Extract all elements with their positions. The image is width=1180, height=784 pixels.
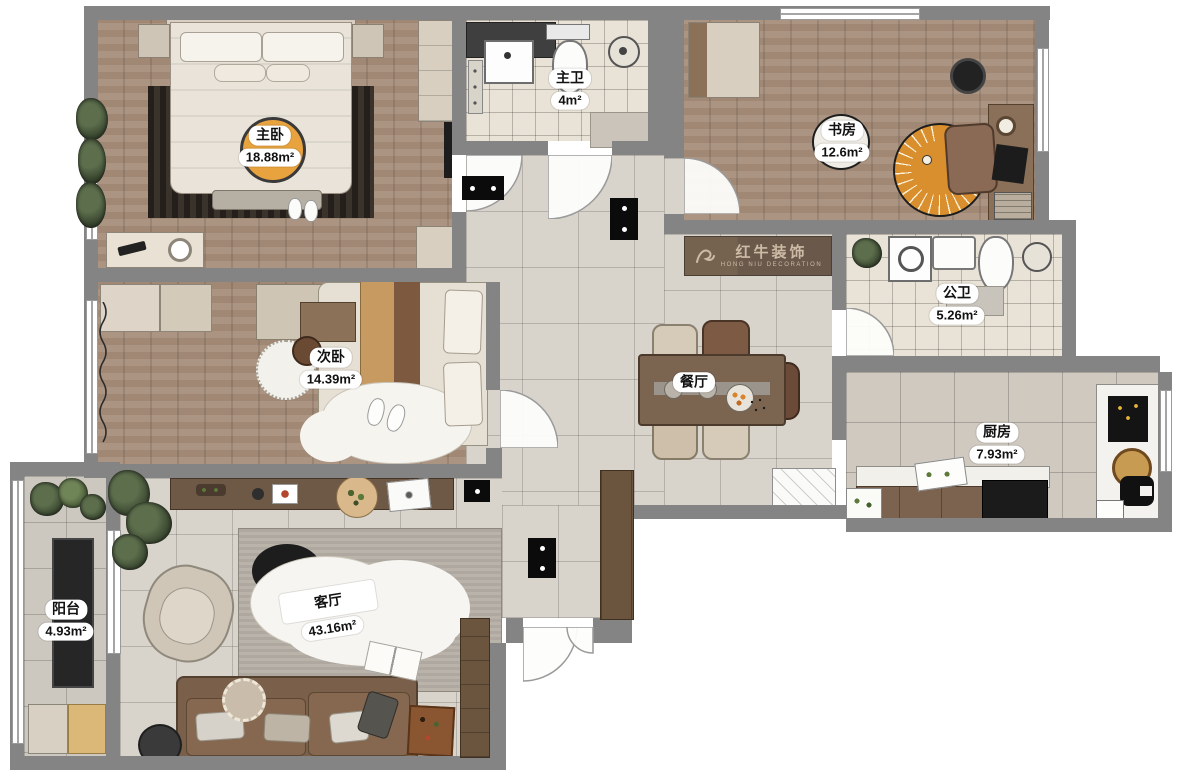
curtain <box>96 302 110 458</box>
wall <box>664 220 1076 234</box>
master-bathroom-door <box>548 155 612 219</box>
master-tv <box>444 122 452 178</box>
wall <box>84 268 466 282</box>
brand-name: 红牛装饰 <box>735 245 807 260</box>
wall <box>846 356 1160 372</box>
lion-eye <box>922 155 932 165</box>
wall <box>486 282 500 390</box>
wall <box>832 356 846 440</box>
room-label-public-bathroom: 公卫 5.26m² <box>929 284 984 325</box>
ceiling-marker <box>610 198 638 240</box>
kitchen-range <box>982 480 1048 520</box>
bathroom-plant <box>852 238 882 268</box>
red-plate <box>272 484 298 504</box>
wall <box>648 20 684 141</box>
entry-cabinet-south <box>460 618 490 758</box>
sink-faucet <box>504 52 511 59</box>
hall-cabinet <box>772 468 836 508</box>
wall <box>664 141 684 158</box>
room-label-master-bathroom: 主卫 4m² <box>549 69 591 110</box>
balcony-plant <box>80 494 106 520</box>
room-name: 厨房 <box>976 423 1018 443</box>
wardrobe <box>160 284 212 332</box>
entry-cabinet-east <box>600 470 634 620</box>
desk-chair <box>944 122 999 195</box>
wall <box>618 505 846 519</box>
room-label-study: 书房 12.6m² <box>814 121 869 162</box>
dining-chair <box>652 420 698 460</box>
wall <box>486 448 502 478</box>
window-study-right <box>1037 48 1049 152</box>
ceiling-marker <box>528 538 556 578</box>
vanity-mirror <box>168 238 192 262</box>
room-area: 14.39m² <box>300 370 362 388</box>
room-label-master-bedroom: 主卧 18.88m² <box>239 126 301 167</box>
shower-head-2 <box>1022 242 1052 272</box>
floor-plan: 红牛装饰 HONG NIU DECORATION 主卧 18.88m² 主卫 4… <box>0 0 1180 784</box>
window-plant <box>76 182 106 228</box>
decor-branch <box>748 396 770 414</box>
slipper <box>304 200 318 222</box>
bathroom-sink <box>484 40 534 84</box>
window-kitchen-right <box>1160 390 1172 472</box>
slipper <box>288 198 302 220</box>
wall <box>452 20 466 155</box>
wall <box>466 141 548 155</box>
wall <box>10 462 120 476</box>
master-pillow-right <box>262 32 344 62</box>
wall <box>452 212 466 268</box>
painting <box>387 478 432 512</box>
room-name: 次卧 <box>310 348 352 368</box>
window-plant <box>76 98 108 140</box>
room-name: 主卫 <box>549 69 591 89</box>
desk-books <box>994 192 1032 220</box>
room-name: 书房 <box>821 121 863 141</box>
wall-marker <box>464 480 490 502</box>
room-area: 12.6m² <box>814 143 869 161</box>
master-pillow-left <box>180 32 262 62</box>
room-name: 公卫 <box>936 284 978 304</box>
wall <box>506 618 523 643</box>
room-label-kitchen: 厨房 7.93m² <box>969 423 1024 464</box>
shower-head-center <box>619 47 627 55</box>
toilet-tank-2 <box>954 270 964 280</box>
room-label-second-bedroom: 次卧 14.39m² <box>300 348 362 389</box>
console-plant <box>336 476 378 518</box>
kettle-slot <box>1140 486 1152 496</box>
side-table <box>407 705 456 757</box>
woven-basket-decor <box>222 678 266 722</box>
master-pillow-small-2 <box>266 64 310 82</box>
wall <box>84 464 492 478</box>
room-name: 阳台 <box>45 600 87 620</box>
toiletry-shelf <box>468 60 483 114</box>
room-area: 18.88m² <box>239 148 301 166</box>
fluffy-rug-lobe <box>300 410 362 462</box>
laptop <box>992 144 1029 184</box>
window-study-top <box>780 8 920 20</box>
room-area: 4m² <box>551 91 588 109</box>
wall <box>488 643 506 758</box>
room-name: 主卧 <box>249 126 291 146</box>
room-label-dining-room: 餐厅 <box>673 372 715 392</box>
balcony-cabinet-wood <box>68 704 106 754</box>
leaf-dish <box>196 484 226 496</box>
sofa-pillow <box>263 713 310 743</box>
brand-subtitle: HONG NIU DECORATION <box>721 262 823 268</box>
bull-logo-icon <box>694 245 716 267</box>
wall <box>832 234 846 310</box>
study-door <box>684 158 740 214</box>
bathroom-sink-2 <box>932 236 976 270</box>
wall <box>612 141 664 155</box>
entrance-double-door <box>523 627 595 685</box>
public-bathroom-door <box>846 308 894 356</box>
room-label-balcony: 阳台 4.93m² <box>38 600 93 641</box>
room-area: 4.93m² <box>38 622 93 640</box>
living-plant <box>112 534 148 570</box>
study-cabinet <box>688 22 760 98</box>
study-doorway-floor <box>664 158 684 214</box>
decor-bowl <box>252 488 264 500</box>
desk-cup <box>996 116 1016 136</box>
wall <box>593 618 632 643</box>
master-wardrobe-bottom <box>416 226 454 270</box>
study-speaker <box>950 58 986 94</box>
room-area: 7.93m² <box>969 445 1024 463</box>
room-name: 餐厅 <box>673 372 715 392</box>
dining-chair <box>702 420 750 460</box>
master-pillow-small <box>214 64 266 82</box>
brand-logo-cabinet: 红牛装饰 HONG NIU DECORATION <box>684 236 832 276</box>
balcony-cabinet <box>28 704 68 754</box>
master-nightstand-left <box>138 24 170 58</box>
window-balcony-left <box>12 480 24 744</box>
second-bed-pillow <box>443 361 483 426</box>
second-bedroom-door <box>500 390 558 448</box>
kitchen-entry-cabinet <box>846 488 882 520</box>
wall <box>1062 234 1076 358</box>
wall <box>846 518 1172 532</box>
second-bed-pillow <box>443 289 483 354</box>
toilet-tank <box>546 24 590 40</box>
window-plant <box>78 138 106 184</box>
cooktop <box>1108 396 1148 442</box>
master-wardrobe-top <box>418 20 454 122</box>
master-nightstand-right <box>352 24 384 58</box>
room-area: 5.26m² <box>929 306 984 324</box>
small-appliance <box>1096 500 1124 520</box>
wall <box>10 756 506 770</box>
ceiling-marker <box>462 176 504 200</box>
washing-machine-door <box>898 246 924 272</box>
